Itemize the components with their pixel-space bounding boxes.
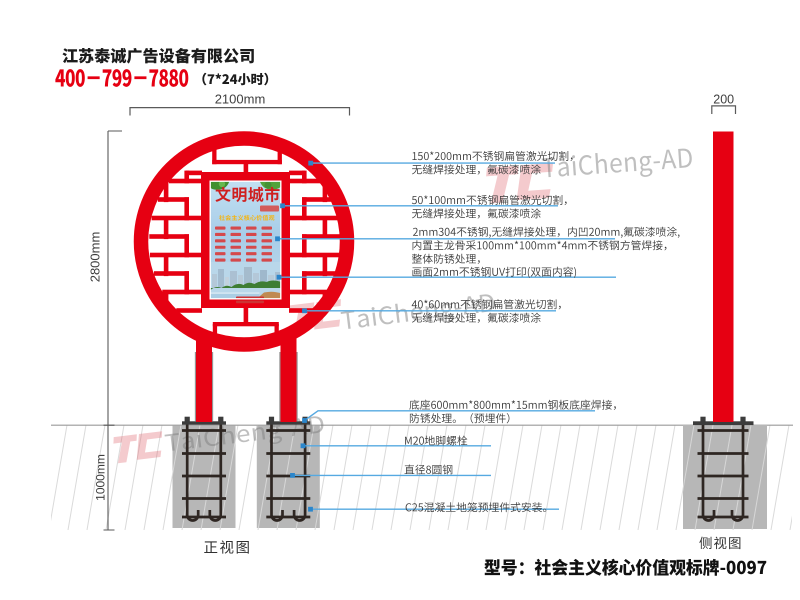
svg-text:200: 200 (713, 93, 734, 107)
svg-text:2800mm: 2800mm (88, 232, 103, 283)
svg-text:1000mm: 1000mm (94, 454, 108, 501)
svg-text:2100mm: 2100mm (215, 92, 266, 107)
